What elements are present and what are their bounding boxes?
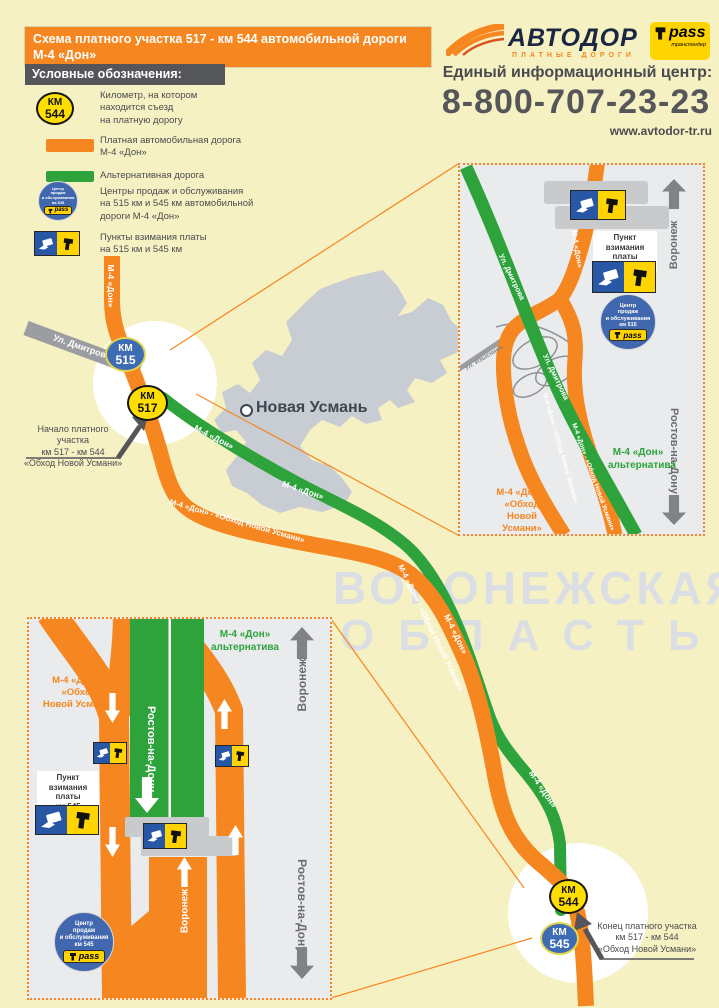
payment-hand-icon xyxy=(144,824,165,848)
km545-badge-num: 545 xyxy=(549,938,569,950)
inset515-sales-text: Центр продаж и обслуживания км 515 xyxy=(606,303,651,328)
km515-badge-km: КМ xyxy=(118,344,132,354)
m4-label-top: М-4 «Дон» xyxy=(106,265,116,308)
inset545-dir-down-label: Ростов-на-Дону xyxy=(295,859,309,953)
km544-badge-num: 544 xyxy=(558,896,578,908)
legend-toll-point-text: Пункты взимания платы на 515 км и 545 км xyxy=(100,232,207,257)
avtodor-logo-subtext: ПЛАТНЫЕ ДОРОГИ xyxy=(512,52,635,59)
tpass-transponder-icon xyxy=(69,952,77,961)
inset545-left-toll-icon xyxy=(93,742,127,764)
inset515-sales-center-badge: Центр продаж и обслуживания км 515 pass xyxy=(600,294,656,350)
payment-hand-icon xyxy=(36,806,67,834)
avtodor-logo-swoosh-icon xyxy=(446,24,504,56)
toll-road-map-poster: ВОРОНЕЖСКАЯ ОБЛАСТЬ Ул. Дмитрова М-4 «До… xyxy=(0,0,719,1008)
legend-alt-road-text: Альтернативная дорога xyxy=(100,170,204,182)
road-down-arrow-icon xyxy=(105,827,120,857)
avtodor-logo-text: АВТОДОР xyxy=(508,24,638,53)
inset-km515: Ул. Дмитрова Ул. Дмитрова М-4 «Дон» М-4 … xyxy=(458,163,705,536)
tpass-transponder-icon xyxy=(654,25,667,41)
legend-km-badge-num: 544 xyxy=(45,108,65,120)
transponder-icon xyxy=(67,806,98,834)
inset515-dir-down-label: Ростов-на-Дону xyxy=(668,408,680,494)
info-center-label: Единый информационный центр: xyxy=(440,64,715,82)
legend-toll-road-text: Платная автомобильная дорога М-4 «Дон» xyxy=(100,135,241,160)
inset545-right-toll-icon xyxy=(215,745,249,767)
green-road-down-arrow-icon xyxy=(135,777,159,813)
legend-toll-point-icon xyxy=(34,231,80,256)
legend-title: Условные обозначения: xyxy=(25,64,225,85)
km545-badge: КМ 545 xyxy=(540,922,579,955)
legend-km-badge-km: КМ xyxy=(48,98,62,108)
inset-km545: М-4 «Дон» альтернатива М-4 «Дон» - «Обхо… xyxy=(27,617,332,1000)
website-url: www.avtodor-tr.ru xyxy=(440,124,712,138)
legend-alt-road-swatch xyxy=(46,171,94,182)
direction-down-arrow-icon xyxy=(662,495,686,525)
transponder-icon xyxy=(624,262,655,292)
legend-km-badge: КМ 544 xyxy=(36,92,74,125)
inset515-alt-label: М-4 «Дон» альтернатива xyxy=(608,447,668,472)
road-up-arrow-icon xyxy=(228,825,243,855)
inset545-sales-text: Центр продаж и обслуживания км 545 xyxy=(60,921,109,949)
payment-hand-icon xyxy=(593,262,624,292)
direction-up-arrow-icon xyxy=(662,179,686,209)
inset515-tpass-badge: pass xyxy=(609,329,647,341)
legend-sales-tpass-badge: pass xyxy=(44,206,72,215)
legend-sales-text: Центры продаж и обслуживания на 515 км и… xyxy=(100,186,253,223)
km545-badge-km: КМ xyxy=(552,928,566,938)
km515-badge-num: 515 xyxy=(115,354,135,366)
payment-hand-icon xyxy=(571,191,598,219)
lane-divider-line xyxy=(169,619,172,829)
km515-badge: КМ 515 xyxy=(105,337,146,372)
transponder-icon xyxy=(57,232,79,255)
payment-hand-icon xyxy=(35,232,57,255)
direction-down-arrow-icon xyxy=(290,947,314,979)
legend-sales-badge-text: Центр продаж и обслуживания на 545 xyxy=(42,187,75,205)
inset515-tpass-text: pass xyxy=(623,331,641,340)
road-up-arrow-icon xyxy=(217,699,232,729)
legend-toll-road-swatch xyxy=(46,139,94,152)
inset545-dir-up-label: Воронеж xyxy=(295,659,309,712)
transponder-icon xyxy=(232,746,248,766)
inset545-orange-dir-label: Воронеж xyxy=(180,889,191,933)
transponder-icon xyxy=(110,743,126,763)
km544-badge: КМ 544 xyxy=(549,879,588,914)
town-dot xyxy=(240,404,253,417)
legend-km-text: Километр, на котором находится съезд на … xyxy=(100,90,197,127)
inset545-alt-label: М-4 «Дон» альтернатива xyxy=(207,629,283,654)
end-callout-text: Конец платного участка км 517 - км 544 «… xyxy=(596,921,698,955)
town-shape xyxy=(214,270,466,513)
start-callout-text: Начало платного участка км 517 - км 544 … xyxy=(22,424,124,469)
tpass-logo-subtext: транспондер xyxy=(654,42,706,48)
inset515-toll-icon-large xyxy=(592,261,656,293)
direction-up-arrow-icon xyxy=(290,627,314,659)
road-up-arrow-icon xyxy=(177,857,192,887)
km517-badge-num: 517 xyxy=(137,402,157,414)
tpass-logo: pass транспондер xyxy=(650,22,710,60)
tpass-transponder-icon xyxy=(614,331,621,339)
town-label: Новая Усмань xyxy=(256,399,368,417)
inset515-obhod-text: М-4 «Дон»- «Обход Новой Усмани» xyxy=(486,487,558,535)
transponder-icon xyxy=(165,824,186,848)
info-center-phone: 8-800-707-23-23 xyxy=(437,83,715,122)
tpass-logo-text: pass xyxy=(669,24,705,42)
road-down-arrow-icon xyxy=(105,693,120,723)
inset545-tpass-badge: pass xyxy=(63,950,105,963)
inset545-sales-center-badge: Центр продаж и обслуживания км 545 pass xyxy=(54,912,114,972)
legend-sales-center-badge: Центр продаж и обслуживания на 545 pass xyxy=(38,181,78,221)
transponder-icon xyxy=(598,191,625,219)
km517-badge: КМ 517 xyxy=(127,385,168,421)
tpass-transponder-icon xyxy=(48,208,53,214)
payment-hand-icon xyxy=(94,743,110,763)
inset515-plaza-toll-icon xyxy=(570,190,626,220)
legend-sales-tpass-text: pass xyxy=(55,207,69,214)
inset545-plaza-toll-icon xyxy=(143,823,187,849)
inset515-dir-up-label: Воронеж xyxy=(668,221,680,270)
km544-badge-km: КМ xyxy=(561,886,575,896)
inset545-toll-icon-large xyxy=(35,805,99,835)
inset545-tpass-text: pass xyxy=(79,951,100,961)
payment-hand-icon xyxy=(216,746,232,766)
poster-title: Схема платного участка 517 - км 544 авто… xyxy=(25,27,431,67)
